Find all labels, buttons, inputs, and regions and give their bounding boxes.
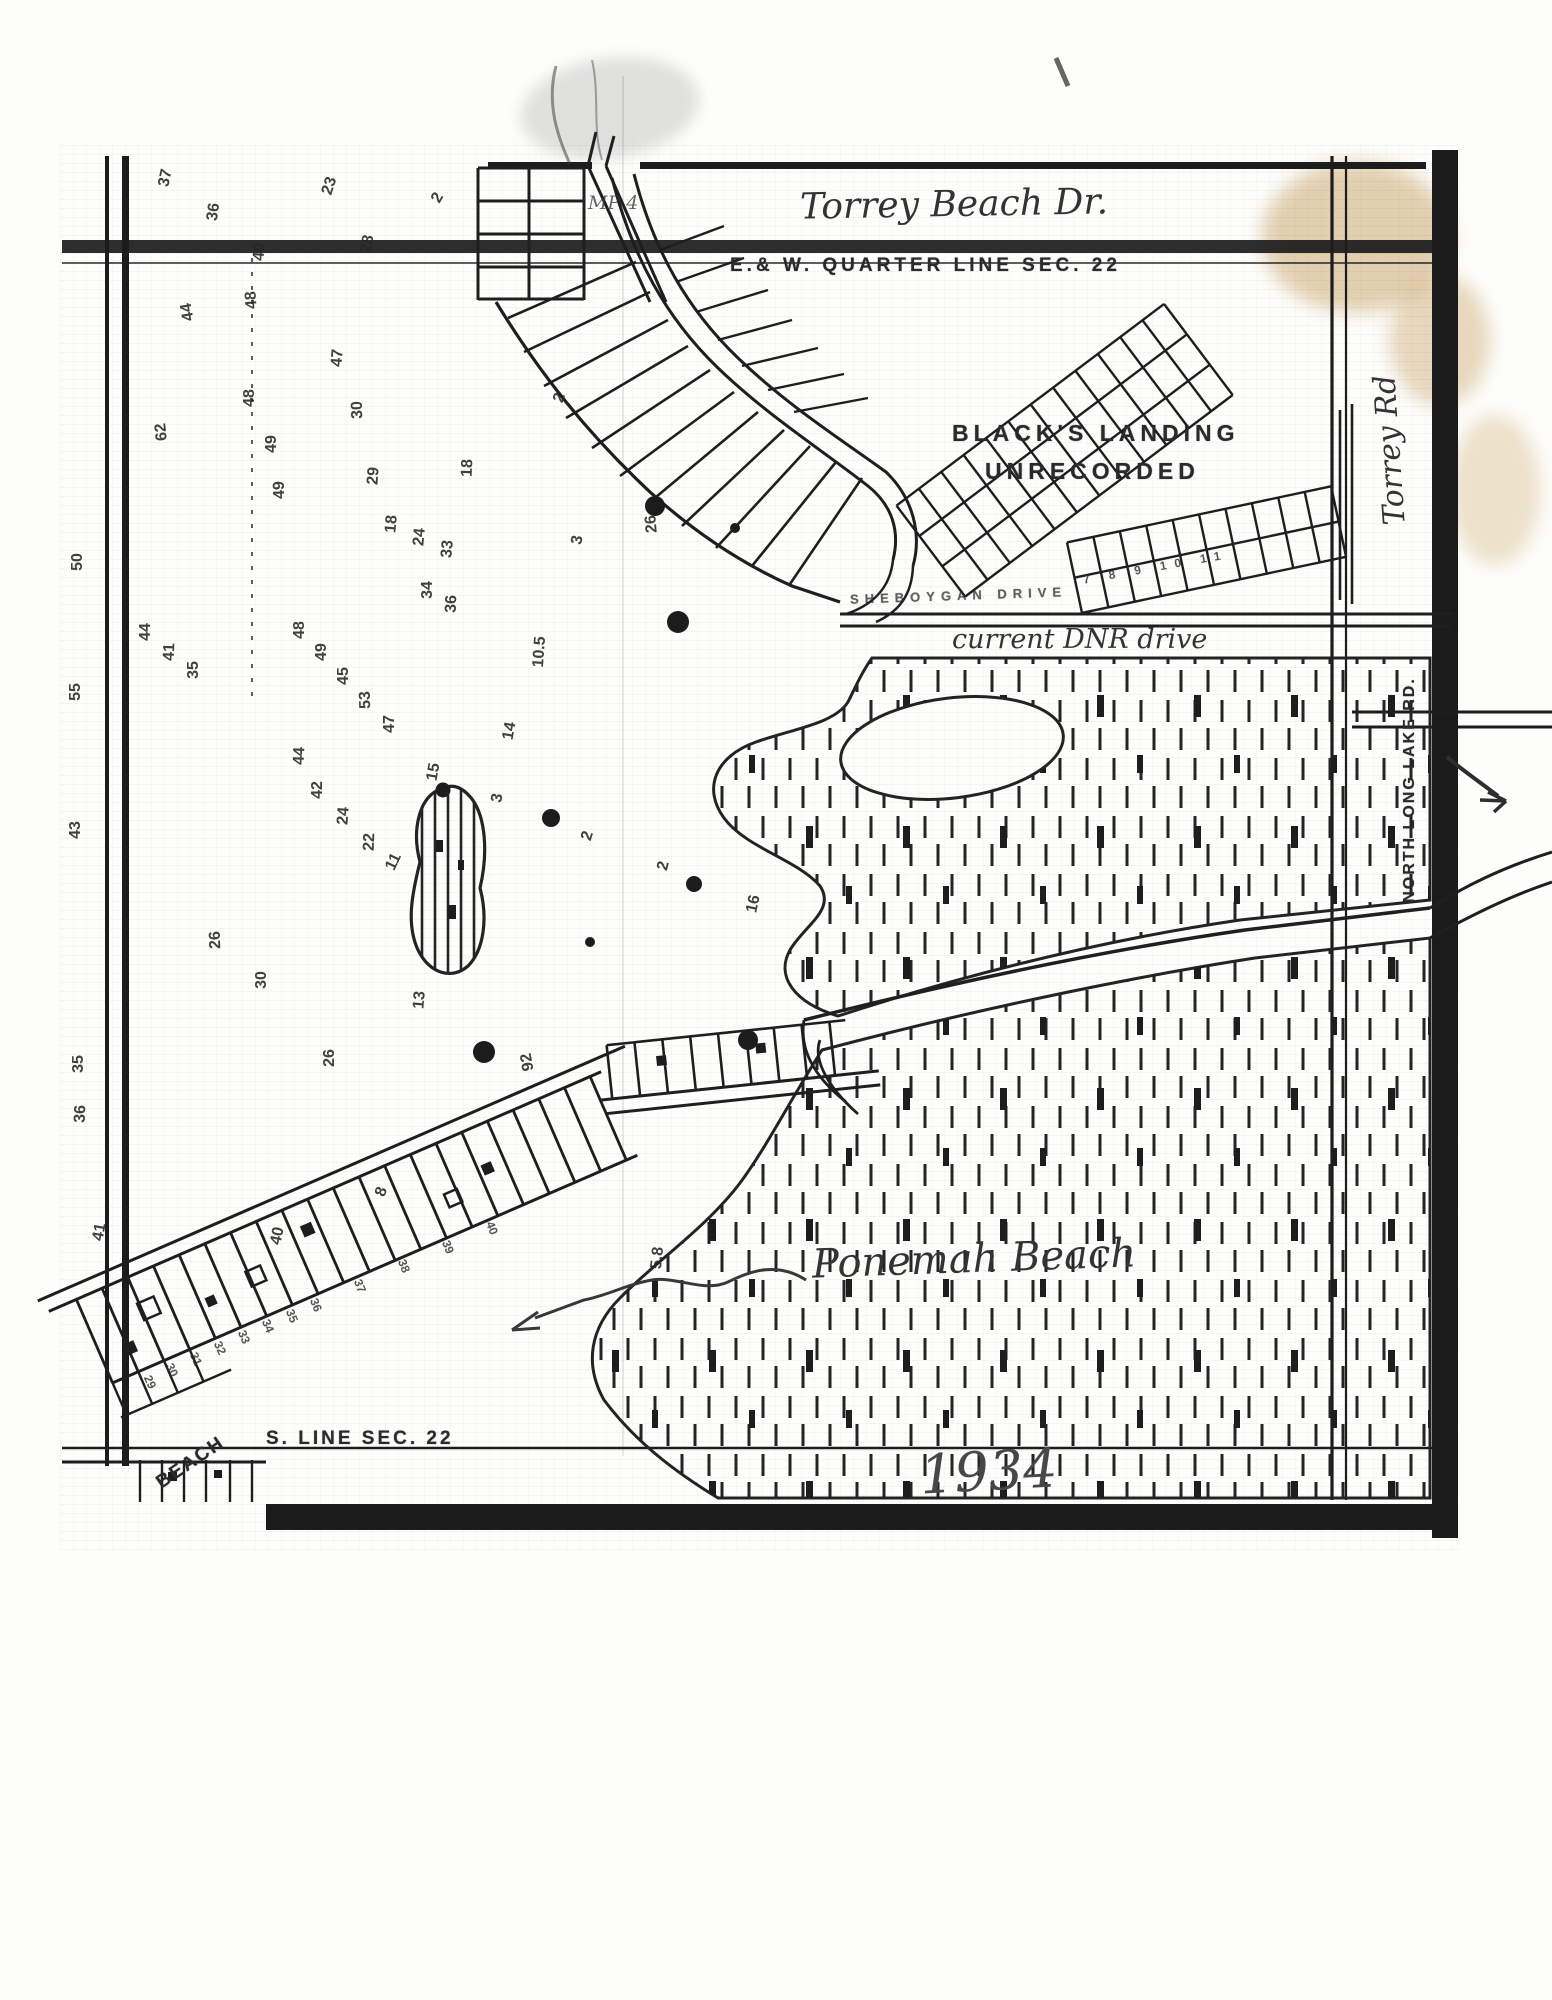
current-dnr-drive-label: current DNR drive bbox=[952, 624, 1207, 655]
depth-sounding: 49 bbox=[263, 435, 281, 453]
spot-mark bbox=[585, 937, 595, 947]
depth-sounding: 49 bbox=[271, 481, 290, 499]
depth-sounding: 36 bbox=[72, 1105, 91, 1123]
depth-sounding: 47 bbox=[328, 348, 347, 367]
depth-sounding: 35 bbox=[70, 1055, 88, 1073]
beach-lot-number: 30 bbox=[163, 1361, 181, 1379]
sheboygan-drive-label: SHEBOYGAN DRIVE bbox=[850, 584, 1068, 607]
fold-line bbox=[622, 76, 624, 1456]
torrey-beach-dr-label: Torrey Beach Dr. bbox=[800, 181, 1109, 227]
depth-sounding: 24 bbox=[334, 806, 353, 825]
depth-sounding: 8 bbox=[372, 1185, 392, 1200]
depth-sounding: 26 bbox=[321, 1049, 339, 1067]
depth-sounding: 48 bbox=[241, 389, 259, 407]
depth-sounding: 44 bbox=[178, 302, 199, 323]
depth-sounding: 10.5 bbox=[530, 636, 550, 668]
spot-mark bbox=[686, 876, 702, 892]
depth-sounding: 15 bbox=[424, 762, 445, 783]
depth-sounding: 14 bbox=[500, 721, 521, 742]
depth-sounding: 44 bbox=[137, 623, 155, 641]
beach-label: BEACH bbox=[152, 1432, 229, 1494]
mp4-mark: MP 4 bbox=[588, 192, 638, 214]
depth-sounding: 18 bbox=[459, 459, 478, 477]
plat-ponemah-beach bbox=[38, 1017, 880, 1429]
hand-drawn-arrow-right bbox=[1447, 757, 1506, 812]
depth-sounding: 28 bbox=[357, 233, 378, 254]
beach-lot-number: 31 bbox=[187, 1350, 205, 1368]
spot-mark bbox=[436, 783, 451, 798]
coffee-stain bbox=[1390, 275, 1490, 405]
depth-sounding: 45 bbox=[335, 667, 353, 685]
depth-sounding: 40 bbox=[267, 1225, 288, 1246]
scan-smudge bbox=[514, 46, 706, 170]
plat-fan bbox=[496, 174, 916, 622]
depth-sounding: 35 bbox=[185, 661, 203, 679]
beach-lot-number: 37 bbox=[351, 1277, 369, 1295]
depth-sounding: 62 bbox=[152, 422, 172, 442]
depth-sounding: 40 bbox=[250, 242, 269, 261]
beach-lot-number: 36 bbox=[307, 1296, 325, 1314]
coffee-stain bbox=[1450, 415, 1540, 565]
depth-sounding: 2 bbox=[578, 829, 598, 843]
depth-sounding: 48 bbox=[291, 621, 309, 639]
depth-sounding: 48 bbox=[242, 290, 261, 309]
depth-sounding: 34 bbox=[419, 581, 437, 599]
beach-lot-number: 32 bbox=[211, 1339, 229, 1357]
spot-mark bbox=[738, 1030, 758, 1050]
depth-sounding: 44 bbox=[291, 747, 310, 765]
depth-sounding: 5.8 bbox=[648, 1246, 668, 1270]
depth-sounding: 47 bbox=[381, 715, 399, 733]
depth-sounding: 29 bbox=[364, 466, 383, 485]
depth-sounding: 13 bbox=[410, 990, 429, 1009]
depth-sounding: 41 bbox=[90, 1222, 111, 1243]
year-annotation: 1934 bbox=[918, 1436, 1059, 1506]
depth-sounding: 22 bbox=[361, 833, 380, 851]
spot-mark bbox=[730, 523, 740, 533]
depth-sounding: 50 bbox=[69, 553, 87, 571]
depth-sounding: 2 bbox=[550, 391, 570, 406]
marsh-area bbox=[592, 658, 1430, 1498]
beach-lot-number: 35 bbox=[283, 1307, 301, 1325]
scanned-plat-map-page: Torrey Beach Dr. MP 4 E.& W. QUARTER LIN… bbox=[0, 0, 1552, 2000]
depth-sounding: 30 bbox=[253, 971, 271, 989]
beach-lot-number: 40 bbox=[483, 1219, 501, 1236]
torrey-rd-label: Torrey Rd bbox=[1367, 374, 1412, 527]
depth-sounding: 49 bbox=[313, 643, 331, 661]
beach-lot-number: 38 bbox=[395, 1257, 413, 1275]
depth-sounding: 16 bbox=[743, 893, 764, 914]
spot-mark bbox=[667, 611, 689, 633]
depth-sounding: 36 bbox=[204, 202, 224, 222]
depth-sounding: 2 bbox=[428, 190, 448, 207]
spot-mark bbox=[645, 496, 665, 516]
scan-noise-overlay bbox=[60, 140, 1460, 1550]
depth-sounding: 42 bbox=[309, 781, 327, 799]
depth-sounding: 18 bbox=[382, 514, 401, 533]
depth-sounding: 43 bbox=[67, 821, 85, 839]
beach-lot-number: 29 bbox=[141, 1373, 159, 1391]
depth-sounding: 30 bbox=[349, 401, 368, 419]
s-line-label: S. LINE SEC. 22 bbox=[266, 1428, 454, 1450]
north-long-lake-rd-label: NORTH LONG LAKE RD. bbox=[1401, 677, 1419, 903]
depth-sounding: 36 bbox=[443, 595, 462, 613]
map-borders bbox=[62, 150, 1552, 1538]
depth-sounding: 3 bbox=[568, 534, 587, 546]
unrecorded-label: UNRECORDED bbox=[985, 458, 1200, 485]
ponemah-beach-label: Ponemah Beach bbox=[811, 1230, 1137, 1287]
depth-sounding: 2 bbox=[654, 860, 674, 873]
beach-lot-number: 39 bbox=[439, 1238, 457, 1255]
depth-sounding: 53 bbox=[357, 691, 376, 709]
island bbox=[411, 786, 484, 973]
depth-sounding: 33 bbox=[438, 539, 457, 558]
spot-mark bbox=[473, 1041, 495, 1063]
depth-sounding: 26 bbox=[642, 514, 661, 533]
blacks-lot-numbers: 7 8 9 10 11 bbox=[1082, 547, 1230, 586]
depth-sounding: 92 bbox=[518, 1052, 539, 1073]
depth-sounding: 11 bbox=[382, 850, 406, 873]
beach-lot-number: 33 bbox=[235, 1328, 253, 1346]
depth-sounding: 26 bbox=[207, 931, 226, 949]
depth-sounding: 24 bbox=[410, 527, 429, 546]
ponemah-squiggle-arrow bbox=[512, 1269, 806, 1330]
channel-road bbox=[803, 852, 1552, 1114]
beach-lot-number: 34 bbox=[259, 1317, 277, 1335]
depth-sounding: 41 bbox=[161, 643, 180, 661]
depth-sounding: 3 bbox=[488, 792, 507, 804]
depth-sounding: 23 bbox=[319, 175, 342, 197]
blacks-landing-label: BLACK'S LANDING bbox=[952, 420, 1239, 447]
quarter-line-label: E.& W. QUARTER LINE SEC. 22 bbox=[730, 255, 1121, 277]
spot-mark bbox=[542, 809, 560, 827]
depth-sounding: 55 bbox=[67, 683, 85, 701]
depth-sounding: 37 bbox=[155, 167, 176, 188]
